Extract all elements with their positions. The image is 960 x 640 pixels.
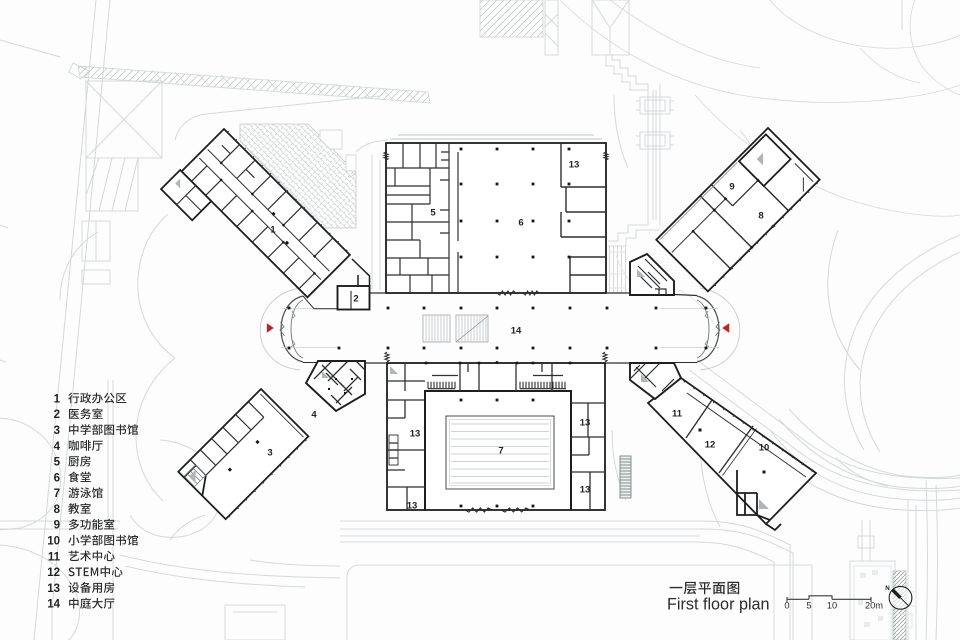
svg-text:11: 11 <box>48 551 61 563</box>
svg-text:14: 14 <box>47 599 60 611</box>
svg-text:5: 5 <box>430 207 436 218</box>
svg-text:13: 13 <box>569 159 580 170</box>
svg-text:4: 4 <box>311 409 317 420</box>
svg-text:N: N <box>885 585 890 592</box>
svg-text:First floor plan: First floor plan <box>667 596 770 614</box>
svg-text:11: 11 <box>672 408 683 419</box>
svg-text:14: 14 <box>511 325 522 336</box>
svg-text:13: 13 <box>407 500 418 511</box>
svg-text:9: 9 <box>54 520 60 532</box>
svg-text:5: 5 <box>806 600 811 610</box>
svg-text:3: 3 <box>54 425 60 437</box>
svg-text:6: 6 <box>54 472 60 484</box>
svg-text:13: 13 <box>47 583 60 595</box>
svg-text:3: 3 <box>267 447 272 458</box>
svg-text:6: 6 <box>518 217 523 228</box>
svg-text:20m: 20m <box>865 600 883 610</box>
svg-text:1: 1 <box>54 393 61 405</box>
svg-text:13: 13 <box>580 484 591 495</box>
svg-text:0: 0 <box>784 600 789 610</box>
svg-text:2: 2 <box>54 409 60 421</box>
svg-text:8: 8 <box>758 210 763 221</box>
svg-text:10: 10 <box>47 536 60 548</box>
svg-text:7: 7 <box>54 488 60 500</box>
svg-text:10: 10 <box>827 600 837 610</box>
svg-text:13: 13 <box>410 428 421 439</box>
svg-text:5: 5 <box>54 457 61 469</box>
svg-text:8: 8 <box>54 504 61 516</box>
svg-text:2: 2 <box>353 293 358 304</box>
svg-text:12: 12 <box>47 567 60 579</box>
svg-text:1: 1 <box>270 224 276 235</box>
svg-text:10: 10 <box>759 442 770 453</box>
svg-text:12: 12 <box>705 439 716 450</box>
svg-text:9: 9 <box>729 181 734 192</box>
svg-text:4: 4 <box>54 441 61 453</box>
svg-text:7: 7 <box>498 445 503 456</box>
svg-text:13: 13 <box>580 417 591 428</box>
